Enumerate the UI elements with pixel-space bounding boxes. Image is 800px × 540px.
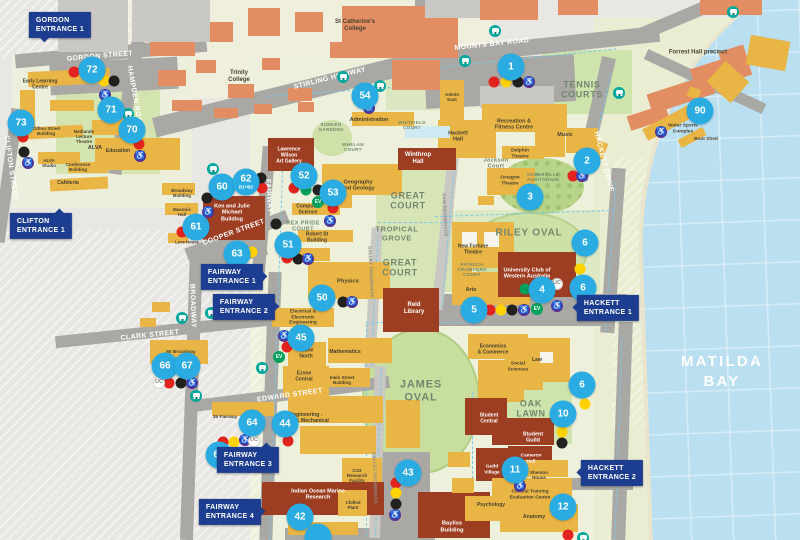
bus-stop-icon: [337, 71, 349, 83]
boundary-dash-line: [378, 222, 448, 223]
accessible-parking-icon: ♿: [655, 126, 667, 138]
building-label: Robert StBuilding: [306, 232, 329, 244]
building-label: New FortuneTheatre: [458, 244, 488, 256]
map-marker-90: 90: [687, 98, 714, 125]
parking-dot-black: [507, 305, 518, 316]
map-marker-60: 60: [209, 174, 236, 201]
parking-dot-yellow: [391, 488, 402, 499]
building-label: Administration: [350, 117, 389, 123]
map-marker-62: 62B1+B2: [233, 169, 260, 196]
building: [386, 400, 420, 448]
map-marker-2: 2: [574, 148, 601, 175]
building-label: Recreation &Fitness Centre: [495, 119, 533, 132]
building-label: Music: [557, 132, 573, 138]
building-label: Cafeteria: [57, 181, 78, 187]
bus-stop-icon: [577, 532, 589, 540]
area-label: GREATCOURT: [390, 191, 426, 212]
area-label: SOMERVILLEAUDITORIUM: [527, 172, 560, 182]
building-label: StudentCentral: [480, 413, 499, 425]
accessible-parking-icon: ♿: [551, 300, 563, 312]
accessible-parking-icon: ♿: [346, 296, 358, 308]
building: [298, 102, 314, 112]
ev-charging-icon: EV: [531, 303, 543, 315]
building-label: ReidLibrary: [404, 302, 424, 316]
building: [392, 60, 440, 90]
building-label: OctagonTheatre: [500, 175, 519, 186]
parking-dot-yellow: [580, 399, 591, 410]
entrance-sign: FAIRWAYENTRANCE 1: [201, 264, 263, 290]
map-marker-67: 67: [174, 353, 201, 380]
map-marker-64: 64: [239, 410, 266, 437]
parking-dot-yellow: [557, 427, 568, 438]
map-marker-71: 71: [98, 97, 125, 124]
building-label: DolphinTheatre: [511, 148, 529, 159]
building-label: Clinical TrainingEvaluation Centre: [510, 489, 551, 500]
building-label: Forrest Hall precinct: [669, 50, 727, 57]
building-label: WinthropHall: [405, 152, 431, 166]
parking-dot-yellow: [229, 437, 240, 448]
building-label: LawrenceWilsonArt Gallery: [276, 147, 302, 164]
building: [448, 452, 470, 467]
street-label: BROADWAY: [187, 284, 197, 329]
building-label: BaylissBuilding: [440, 520, 463, 533]
building-label: GuildVillage: [484, 464, 499, 475]
entrance-sign: HACKETTENTRANCE 1: [577, 295, 639, 321]
building: [50, 100, 94, 111]
bus-stop-icon: [190, 390, 202, 402]
building-label: Early LearningCentre: [23, 79, 58, 91]
map-marker-10: 10: [550, 401, 577, 428]
building: [132, 0, 210, 42]
building: [452, 478, 474, 493]
parking-dot-black: [557, 438, 568, 449]
parking-dot-yellow: [575, 264, 586, 275]
building-label: Mathematics: [329, 350, 360, 356]
uc-badge: UC: [248, 435, 260, 447]
building-label: Indian Ocean MarineResearch: [291, 489, 345, 502]
building-label: AdminEast: [445, 92, 459, 102]
map-marker-53: 53: [320, 180, 347, 207]
entrance-sign: HACKETTENTRANCE 2: [581, 460, 643, 486]
parking-dot-black: [391, 499, 402, 510]
building: [214, 108, 238, 118]
bus-stop-icon: [176, 312, 188, 324]
building-label: Irwin StreetBuilding: [330, 375, 355, 385]
building-label: CO2ResearchFacility: [347, 468, 367, 484]
area-label: TROPICALGROVE: [375, 225, 418, 242]
area-label: SUNKENGARDENS: [318, 122, 343, 132]
building-label: ALVA: [88, 145, 102, 151]
building-label: Ken and JulieMichaelBuilding: [214, 204, 250, 223]
entrance-sign: FAIRWAYENTRANCE 3: [217, 447, 279, 473]
building: [196, 60, 216, 73]
building: [140, 318, 156, 327]
building: [262, 58, 280, 70]
building: [172, 100, 202, 111]
map-marker-44: 44: [272, 411, 299, 438]
entrance-sign: CLIFTONENTRANCE 1: [10, 213, 72, 239]
building-label: SocialSciences: [508, 361, 529, 372]
building-label: ConferenceBuilding: [66, 162, 91, 172]
building-label: ChilledPlant: [345, 500, 360, 510]
map-marker-1: 1: [498, 54, 525, 81]
entrance-sign: FAIRWAYENTRANCE 2: [213, 294, 275, 320]
accessible-parking-icon: ♿: [302, 253, 314, 265]
matilda-bay-label: MATILDA BAY: [681, 352, 763, 393]
map-marker-61: 61: [183, 214, 210, 241]
parking-dot-red: [489, 77, 500, 88]
accessible-parking-icon: ♿: [134, 150, 146, 162]
building: [480, 0, 538, 20]
map-marker-5: 5: [461, 297, 488, 324]
area-label: RILEY OVAL: [495, 227, 562, 239]
ev-charging-icon: EV: [273, 351, 285, 363]
building-label: ALVAStudio: [42, 158, 56, 168]
parking-dot-black: [109, 76, 120, 87]
parking-dot-black: [271, 219, 282, 230]
building: [248, 8, 280, 36]
building: [254, 104, 272, 114]
building: [300, 426, 376, 454]
map-marker-43: 43: [395, 460, 422, 487]
area-label: OAKLAWN: [516, 399, 545, 420]
building: [228, 84, 254, 98]
accessible-parking-icon: ♿: [324, 215, 336, 227]
building-label: Water SportsComplex: [668, 123, 698, 134]
map-marker-54: 54: [352, 83, 379, 110]
area-label: JacksonCourt: [483, 158, 508, 171]
building-label: Law: [532, 358, 542, 364]
building-label: St Catherine'sCollege: [335, 19, 375, 33]
building-label: TrinityCollege: [228, 70, 250, 84]
building: [558, 0, 598, 15]
accessible-parking-icon: ♿: [22, 157, 34, 169]
building-label: EzoneCentral: [295, 371, 312, 383]
building-label: Love House: [175, 241, 199, 246]
building-label: ShentonHouse: [530, 470, 548, 480]
building-label: Education: [106, 149, 130, 155]
accessible-parking-icon: ♿: [389, 509, 401, 521]
map-marker-72: 72: [79, 57, 106, 84]
map-marker-6: 6: [569, 372, 596, 399]
map-marker-12: 12: [550, 494, 577, 521]
building-label: HackettHall: [448, 131, 468, 144]
bus-stop-icon: [489, 25, 501, 37]
area-label: PATRICIACRAWFORDCOURT: [457, 262, 486, 278]
building-label: NedlandsLectureTheatre: [74, 129, 94, 145]
area-label: TENNISCOURTS: [561, 80, 603, 101]
area-label: WHELANCOURT: [342, 142, 364, 152]
building: [152, 302, 170, 312]
building: [158, 70, 186, 86]
area-label: JAMESOVAL: [400, 378, 442, 403]
bay-label-line2: BAY: [681, 372, 763, 392]
building-label: Boat Shed: [694, 137, 718, 143]
building: [478, 196, 494, 205]
map-marker-73: 73: [8, 110, 35, 137]
building-label: Clifton StreetBuilding: [32, 126, 60, 136]
uwa-campus-map: MATILDA BAY GORDON STREETHAMPDEN ROADCLI…: [0, 0, 800, 540]
map-marker-45: 45: [288, 325, 315, 352]
bay-label-line1: MATILDA: [681, 352, 763, 372]
bus-stop-icon: [727, 6, 739, 18]
map-marker-3: 3: [517, 184, 544, 211]
accessible-parking-icon: ♿: [523, 76, 535, 88]
building-label: StudentGuild: [523, 432, 543, 445]
building-label: BroadwayBuilding: [171, 188, 193, 198]
bus-stop-icon: [459, 55, 471, 67]
map-marker-70: 70: [119, 117, 146, 144]
map-marker-51: 51: [275, 232, 302, 259]
entrance-sign: GORDONENTRANCE 1: [29, 12, 91, 38]
building: [295, 12, 323, 32]
building-label: 39 Fairway: [213, 415, 238, 421]
building: [425, 0, 480, 18]
parking-dot-black: [19, 147, 30, 158]
map-marker-50: 50: [309, 285, 336, 312]
area-label: GREATCOURT: [382, 258, 418, 279]
building-label: Psychology: [477, 503, 505, 509]
accessible-parking-icon: ♿: [518, 304, 530, 316]
building-label: Economics& Commerce: [478, 344, 509, 356]
parking-dot-red: [563, 530, 574, 540]
entrance-sign: FAIRWAYENTRANCE 4: [199, 499, 261, 525]
map-marker-11: 11: [502, 457, 529, 484]
bus-stop-icon: [256, 362, 268, 374]
parking-dot-yellow: [496, 305, 507, 316]
map-marker-6: 6: [572, 230, 599, 257]
bus-stop-icon: [613, 87, 625, 99]
area-label: WHITFIELDCOURT: [398, 120, 426, 130]
building-label: Arts: [465, 287, 476, 293]
building-label: Physics: [337, 279, 359, 286]
building-label: Anatomy: [523, 515, 545, 521]
map-marker-52: 52: [291, 163, 318, 190]
map-marker-4: 4: [529, 277, 556, 304]
